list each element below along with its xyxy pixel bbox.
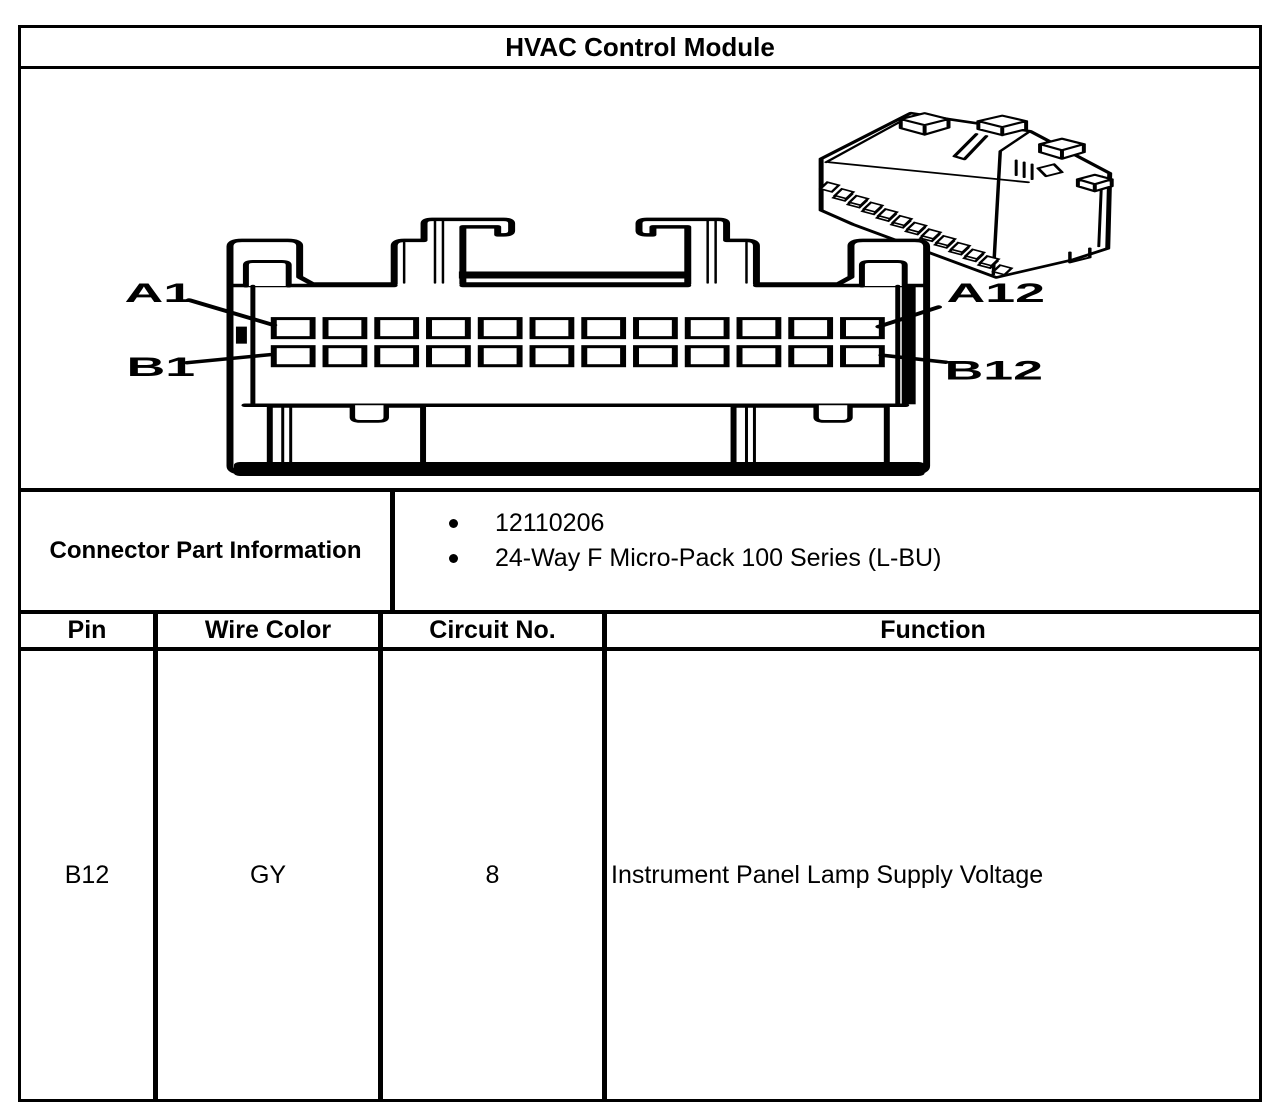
- header-wire-color: Wire Color: [158, 614, 383, 647]
- connector-center-bridge: [459, 271, 690, 278]
- cell-pin: B12: [21, 651, 158, 1099]
- cell-wire-color: GY: [158, 651, 383, 1099]
- connector-face-view: A1 A12 B1 B12: [124, 219, 1045, 476]
- pin-cavity: [791, 319, 830, 338]
- right-shoulder-notch: [862, 261, 905, 286]
- pin-cavity: [533, 347, 572, 366]
- list-item: 12110206: [449, 506, 1259, 541]
- pin-cavity: [843, 319, 882, 338]
- left-shoulder-notch: [246, 261, 289, 286]
- pin-table-data-row: B12 GY 8 Instrument Panel Lamp Supply Vo…: [21, 647, 1259, 1099]
- pin-cavity: [274, 347, 313, 366]
- pin-cavity: [791, 347, 830, 366]
- cell-circuit-no: 8: [383, 651, 607, 1099]
- part-description: 24-Way F Micro-Pack 100 Series (L-BU): [495, 544, 941, 573]
- cell-function: Instrument Panel Lamp Supply Voltage: [607, 651, 1259, 1099]
- part-number: 12110206: [495, 509, 604, 538]
- connector-diagram-svg: A1 A12 B1 B12: [21, 69, 1259, 488]
- pin-cavity: [843, 347, 882, 366]
- pin-cavity: [688, 347, 727, 366]
- pin-cavity: [481, 319, 520, 338]
- pin-label-a12: A12: [947, 278, 1046, 309]
- pin-cavity: [481, 347, 520, 366]
- pin-label-b1: B1: [126, 352, 195, 383]
- connector-right-foot: [734, 405, 887, 465]
- pin-cavity: [429, 319, 468, 338]
- pin-cavity: [274, 319, 313, 338]
- header-circuit-no: Circuit No.: [383, 614, 607, 647]
- left-wall-segment: [236, 327, 247, 344]
- connector-part-information-row: Connector Part Information 12110206 24-W…: [21, 488, 1259, 610]
- title-bar: HVAC Control Module: [21, 28, 1259, 69]
- pin-cavity: [584, 319, 623, 338]
- pin-cavity: [740, 319, 779, 338]
- pin-cavity: [584, 347, 623, 366]
- connector-part-information-label: Connector Part Information: [21, 492, 395, 610]
- pin-cavity: [326, 319, 365, 338]
- connector-diagram-area: A1 A12 B1 B12: [21, 69, 1259, 488]
- pin-cavity: [740, 347, 779, 366]
- right-wall-band: [902, 287, 916, 405]
- pin-table-header-row: Pin Wire Color Circuit No. Function: [21, 610, 1259, 647]
- pin-label-b12: B12: [945, 356, 1044, 387]
- pin-cavity: [326, 347, 365, 366]
- pin-cavity: [377, 319, 416, 338]
- pin-cavity: [636, 319, 675, 338]
- pin-cavity: [429, 347, 468, 366]
- header-function: Function: [607, 614, 1259, 647]
- pin-cavity: [636, 347, 675, 366]
- pin-cavity: [377, 347, 416, 366]
- header-pin: Pin: [21, 614, 158, 647]
- connector-part-information-list: 12110206 24-Way F Micro-Pack 100 Series …: [395, 492, 1259, 610]
- connector-bottom-bar: [234, 462, 925, 476]
- document-page: HVAC Control Module: [18, 25, 1262, 1102]
- list-item: 24-Way F Micro-Pack 100 Series (L-BU): [449, 541, 1259, 576]
- connector-left-foot: [270, 405, 423, 465]
- bullet-icon: [449, 519, 458, 528]
- page-title: HVAC Control Module: [505, 32, 775, 63]
- pin-cavity: [533, 319, 572, 338]
- pin-cavity: [688, 319, 727, 338]
- pin-label-a1: A1: [124, 278, 193, 309]
- bullet-icon: [449, 554, 458, 563]
